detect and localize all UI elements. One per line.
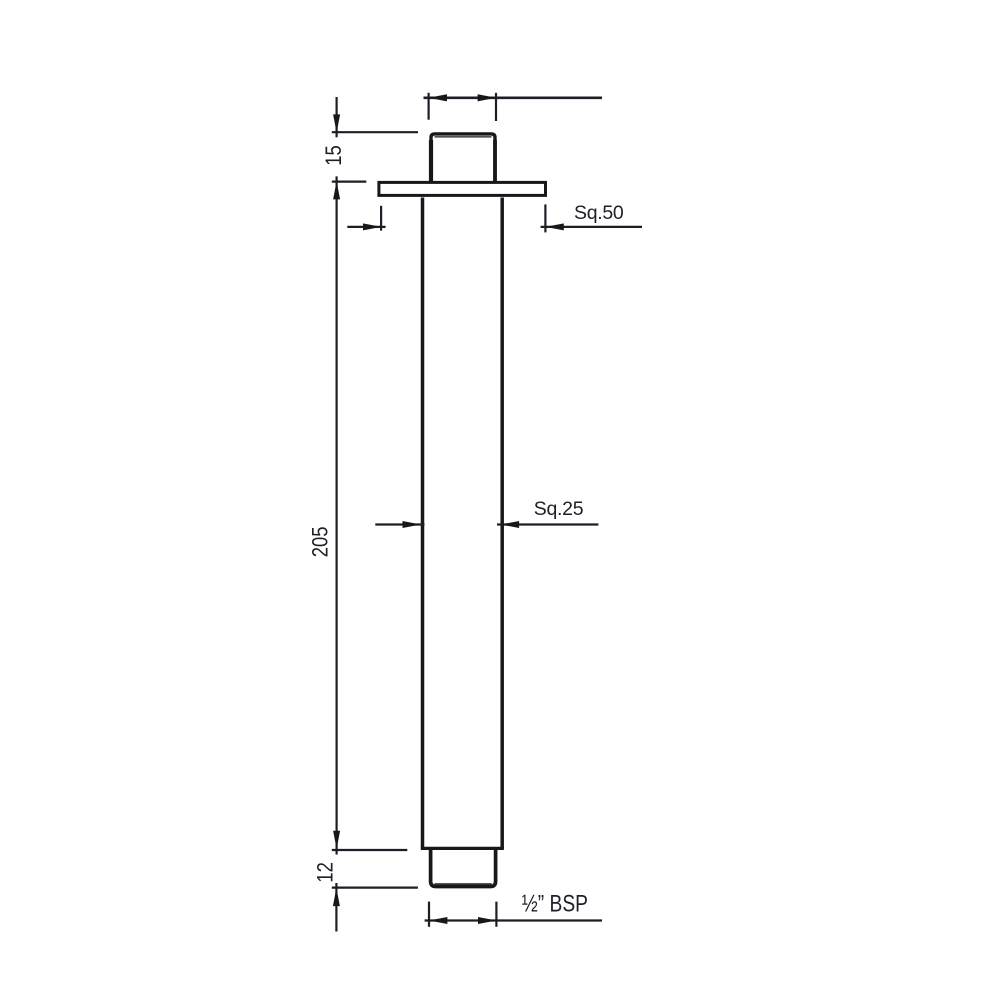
svg-text:Sq.25: Sq.25	[534, 498, 584, 520]
svg-text:12: 12	[313, 862, 338, 883]
svg-text:15: 15	[321, 145, 346, 166]
svg-text:Sq.50: Sq.50	[574, 202, 624, 224]
svg-text:½” BSP: ½” BSP	[522, 889, 588, 917]
svg-text:205: 205	[308, 527, 333, 558]
